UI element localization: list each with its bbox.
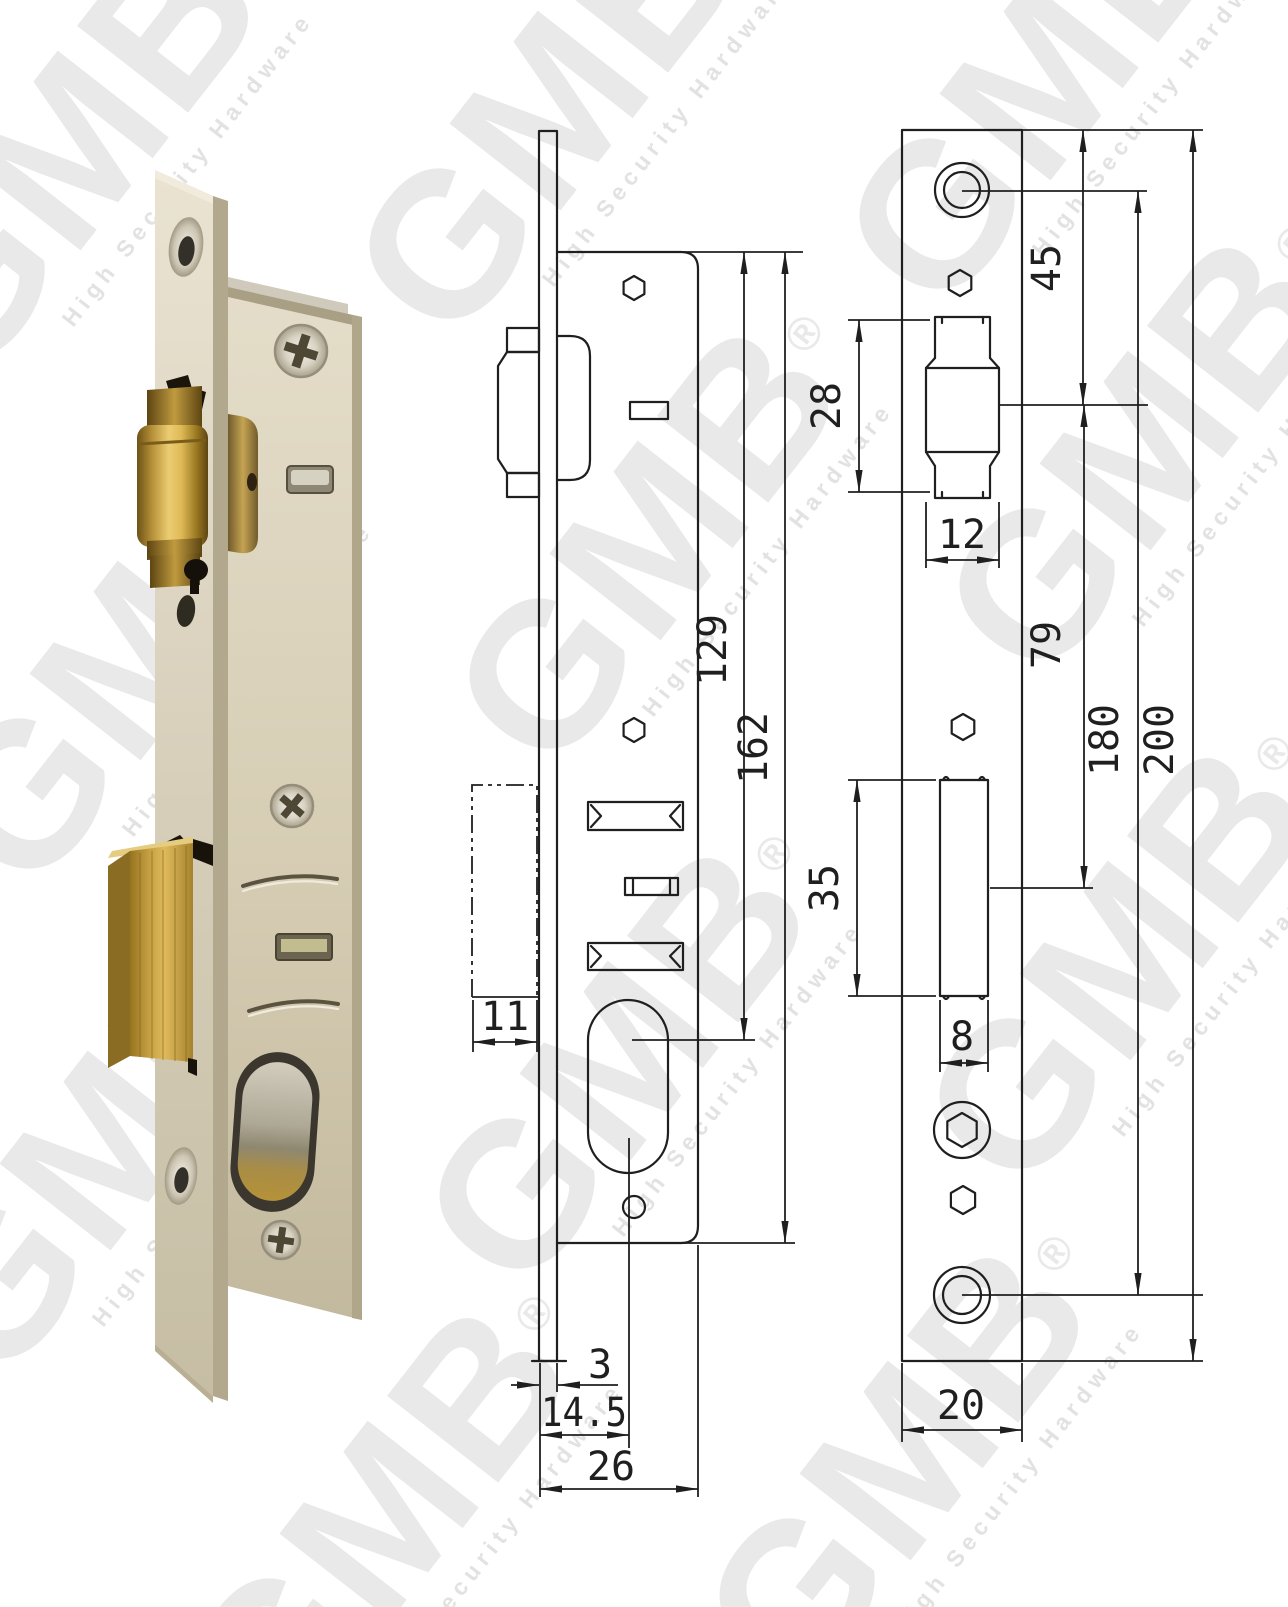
hex-socket-hole: [934, 1102, 990, 1158]
lever-slot: [940, 777, 988, 999]
dim-label-28: 28: [804, 382, 850, 430]
side-view-drawing: 129 162 11 3 14.5 26: [472, 131, 803, 1497]
page: GMB® High Security Hardware GMB® High Se…: [0, 0, 1288, 1607]
hexagon-hole: [952, 714, 975, 740]
three-part-slot: [625, 878, 678, 895]
case-right-edge: [352, 315, 362, 1320]
cylinder-cutout: [228, 1049, 323, 1214]
dim-label-79: 79: [1024, 621, 1070, 669]
case-slot-insert: [287, 466, 333, 493]
dim-label-3: 3: [588, 1342, 612, 1388]
lock-photo: [108, 170, 362, 1403]
dim-label-20: 20: [937, 1383, 985, 1429]
case-insert-slot: [276, 934, 332, 960]
front-view-dimensions: 45 79 28 12 35 8 180 200 20: [802, 130, 1203, 1442]
dim-label-26: 26: [587, 1444, 635, 1490]
dim-label-35: 35: [802, 864, 848, 912]
roller-latch-front: [926, 317, 999, 498]
chamfered-slot: [588, 802, 683, 830]
dim-label-14-5: 14.5: [541, 1390, 627, 1436]
dim-label-180: 180: [1082, 704, 1128, 776]
roller-latch-side: [498, 352, 539, 473]
lock-case-outline: [557, 252, 698, 1243]
roller-latch-top-tab: [507, 328, 539, 352]
dim-label-45: 45: [1024, 244, 1070, 292]
dim-label-162: 162: [731, 712, 777, 784]
faceplate: [155, 170, 213, 1396]
hex-socket-inner: [947, 1113, 976, 1147]
roller-latch: [137, 375, 208, 594]
side-view-geometry: [472, 131, 698, 1448]
side-view-dimensions: 129 162 11 3 14.5 26: [473, 252, 803, 1497]
phillips-screw: [271, 785, 313, 827]
technical-drawing-svg: 129 162 11 3 14.5 26: [0, 0, 1288, 1607]
front-view-drawing: 45 79 28 12 35 8 180 200 20: [802, 130, 1203, 1442]
deadbolt-left-bevel: [108, 851, 130, 1068]
phillips-screw: [262, 1221, 300, 1259]
phillips-screw: [275, 325, 327, 377]
screw-hole-top-inner: [944, 172, 980, 208]
dim-label-8: 8: [950, 1014, 974, 1060]
latch-pin: [184, 559, 208, 581]
faceplate-side-edge: [213, 196, 228, 1401]
latch-housing-outline: [557, 336, 590, 480]
faceplate-edge: [539, 131, 557, 1361]
small-hole: [623, 1196, 645, 1218]
roller-latch-bottom-tab: [507, 473, 539, 497]
dim-label-129: 129: [690, 614, 736, 686]
hexagon-hole: [949, 270, 972, 296]
hexagon-hole: [624, 276, 645, 300]
dim-label-12: 12: [938, 512, 986, 558]
hexagon-hole: [951, 1186, 975, 1214]
phantom-cylinder-outline: [472, 785, 537, 997]
handle-slot: [630, 402, 668, 419]
faceplate-front: [902, 130, 1022, 1361]
dim-label-11: 11: [481, 994, 529, 1040]
hexagon-hole: [624, 718, 645, 742]
cylinder-oval-hole: [588, 1000, 668, 1173]
chamfered-slot: [588, 943, 683, 970]
front-view-geometry: [902, 130, 1022, 1361]
latch-pin-tail: [190, 580, 199, 594]
housing-detail: [247, 473, 257, 491]
dim-label-200: 200: [1137, 704, 1183, 776]
